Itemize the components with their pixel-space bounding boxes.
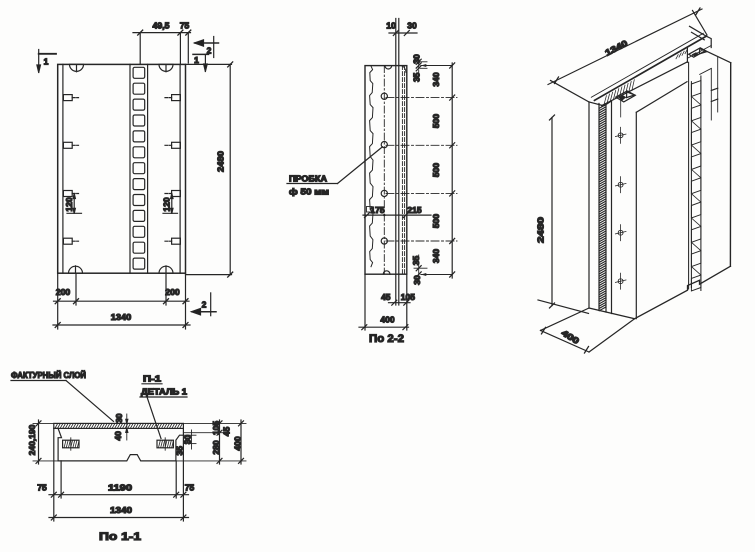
svg-text:45: 45 xyxy=(381,292,391,302)
svg-text:ф 50 мм: ф 50 мм xyxy=(289,187,329,197)
svg-text:45: 45 xyxy=(221,427,231,437)
svg-text:200: 200 xyxy=(165,287,180,297)
svg-text:По 1-1: По 1-1 xyxy=(99,531,141,543)
svg-text:49,5: 49,5 xyxy=(153,21,170,31)
svg-text:30: 30 xyxy=(114,413,124,423)
svg-text:30: 30 xyxy=(412,54,422,64)
svg-text:1340: 1340 xyxy=(110,505,132,515)
svg-text:105: 105 xyxy=(211,421,221,435)
svg-text:1190: 1190 xyxy=(108,483,132,493)
svg-text:1: 1 xyxy=(194,55,199,65)
svg-text:ДЕТАЛЬ 1: ДЕТАЛЬ 1 xyxy=(141,387,187,397)
svg-text:280: 280 xyxy=(211,440,221,454)
svg-text:75: 75 xyxy=(185,483,195,493)
svg-text:340: 340 xyxy=(431,72,441,86)
svg-text:40: 40 xyxy=(113,431,123,441)
svg-text:340: 340 xyxy=(431,249,441,263)
svg-text:400: 400 xyxy=(232,436,242,450)
svg-text:75: 75 xyxy=(180,21,190,31)
svg-text:2: 2 xyxy=(202,300,207,310)
svg-text:10: 10 xyxy=(386,21,396,31)
svg-text:240,190: 240,190 xyxy=(27,424,37,455)
svg-text:500: 500 xyxy=(431,214,441,228)
svg-text:175: 175 xyxy=(370,205,384,215)
svg-text:35: 35 xyxy=(411,256,421,266)
svg-text:ПРОБКА: ПРОБКА xyxy=(289,174,327,184)
svg-text:215: 215 xyxy=(407,205,421,215)
svg-text:30: 30 xyxy=(412,275,422,285)
svg-text:105: 105 xyxy=(401,292,415,302)
svg-text:2480: 2480 xyxy=(535,217,545,243)
svg-text:30: 30 xyxy=(407,21,417,31)
svg-text:500: 500 xyxy=(431,114,441,128)
svg-text:1340: 1340 xyxy=(603,38,629,58)
svg-text:1340: 1340 xyxy=(111,312,132,322)
svg-text:75: 75 xyxy=(37,483,47,493)
svg-text:1: 1 xyxy=(44,57,49,67)
svg-text:П-1: П-1 xyxy=(143,374,161,384)
svg-text:500: 500 xyxy=(431,163,441,177)
svg-text:2480: 2480 xyxy=(215,151,225,172)
svg-text:400: 400 xyxy=(380,315,394,325)
svg-text:200: 200 xyxy=(56,287,71,297)
svg-text:30: 30 xyxy=(183,435,193,445)
svg-text:ФАКТУРНЫЙ СЛОЙ: ФАКТУРНЫЙ СЛОЙ xyxy=(11,369,86,380)
svg-text:По 2-2: По 2-2 xyxy=(369,333,404,345)
svg-text:35: 35 xyxy=(411,72,421,82)
svg-text:120: 120 xyxy=(161,197,171,211)
svg-text:120: 120 xyxy=(64,197,74,211)
